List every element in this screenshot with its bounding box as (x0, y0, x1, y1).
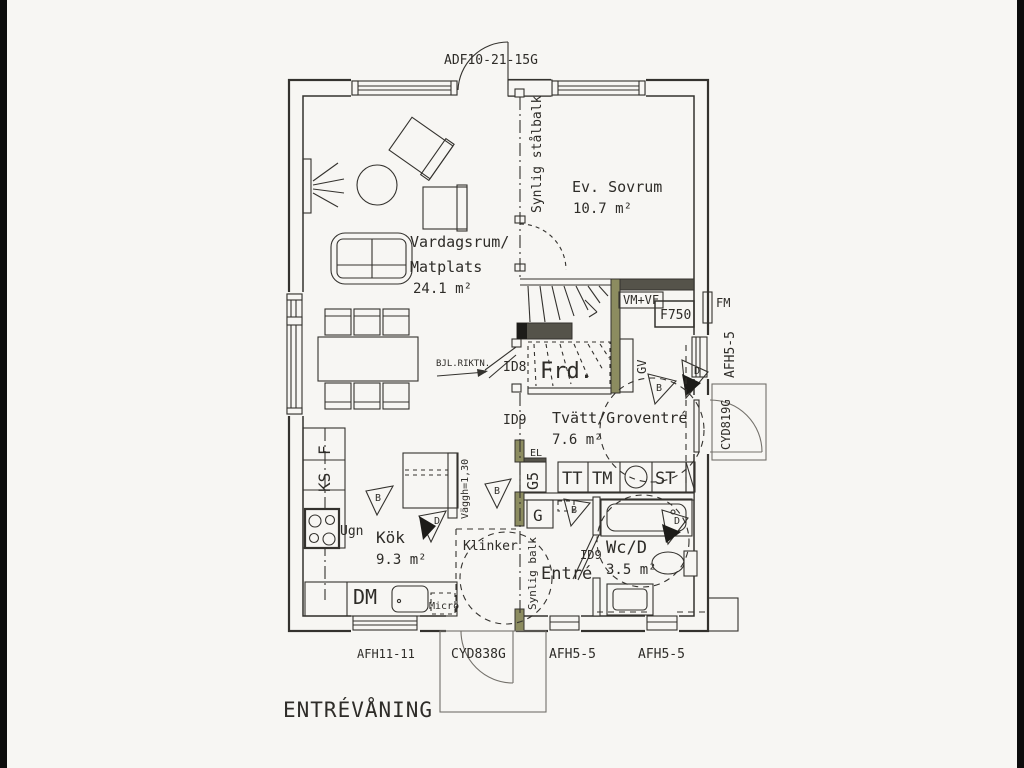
wc-west-wall-lower (593, 578, 600, 616)
id8-label: ID8 (503, 360, 526, 375)
id9-label: ID9 (503, 413, 526, 428)
tech-room: VM+VF F750 GV FM (619, 292, 730, 392)
page-title: ENTRÉVÅNING (283, 696, 433, 722)
wc-name: Wc/D (606, 538, 647, 558)
half-wall-label: Väggh=1,30 (460, 459, 471, 519)
steel-beam-label: Synlig stålbalk (530, 95, 545, 213)
laundry-sink (625, 466, 647, 488)
bedroom-future-door (515, 216, 566, 271)
pillar-top (508, 80, 552, 97)
fm-label: FM (716, 296, 730, 310)
floor-plan-drawing: Synlig stålbalk Synlig balk BJL.RIKTN. (0, 0, 1024, 768)
svg-text:B: B (656, 383, 662, 394)
front-porch (440, 631, 546, 712)
entry-door-code: CYD838G (451, 647, 506, 662)
stove-icon (305, 509, 339, 548)
marker-d-kitchen: D (419, 511, 446, 542)
washbasin (607, 584, 653, 615)
right-door-code: CYD819G (719, 399, 733, 450)
kitchen-name: Kök (376, 528, 405, 547)
wc-area: 3.5 m² (606, 562, 657, 578)
vm-vf-label: VM+VF (623, 293, 659, 307)
rear-platform (708, 598, 738, 631)
svg-text:D: D (674, 516, 680, 527)
kitchen-window-code: AFH11-11 (357, 647, 415, 661)
svg-text:B: B (494, 486, 500, 497)
entry-window-code: AFH5-5 (549, 647, 596, 662)
dishwasher-label: DM (353, 585, 377, 609)
laundry-name: Tvätt/Groventré (552, 409, 687, 427)
patio-door-code: ADF10-21-15G (444, 53, 538, 68)
gv-label: GV (635, 360, 649, 374)
toilet (652, 551, 697, 576)
svg-text:D: D (694, 366, 700, 377)
beam-direction-label: BJL.RIKTN. (436, 359, 490, 369)
storage-bottom-wall (528, 388, 611, 394)
armchair-1 (388, 116, 454, 181)
dining-table (318, 337, 418, 381)
dining-chairs (325, 309, 409, 409)
bedroom-name: Ev. Sovrum (572, 178, 662, 196)
marker-d-wc: D (662, 510, 688, 544)
tv-icon (303, 159, 344, 213)
dining-set (318, 309, 418, 409)
wardrobe-g5-label: G5 (524, 472, 542, 490)
water-heater-label: F750 (660, 308, 691, 323)
stairs: Frd. ID8 ID9 (503, 286, 610, 428)
svg-text:B: B (571, 505, 577, 516)
stair-handrail-cap (517, 323, 527, 339)
island (403, 453, 458, 518)
cleaning-label: ST (655, 469, 675, 489)
kitchen-area: 9.3 m² (376, 552, 427, 568)
oven-label: Ugn (340, 524, 363, 539)
living-name-1: Vardagsrum/ (410, 233, 509, 251)
living-name-2: Matplats (410, 258, 482, 276)
wardrobe-g-label: G (533, 506, 543, 525)
laundry-area: 7.6 m² (552, 432, 603, 448)
fridge-freezer-label: KS (315, 473, 334, 492)
bedroom-area: 10.7 m² (573, 201, 632, 217)
marker-b-island: B (485, 479, 511, 508)
id9-wc-label: ID9 (580, 548, 602, 562)
floor-tiles-label: Klinker (463, 539, 518, 554)
armchair-2 (423, 185, 467, 231)
laundry-room: Tvätt/Groventré 7.6 m² TT TM ST EL (524, 378, 704, 492)
living-area: 24.1 m² (413, 281, 472, 297)
dryer-label: TT (562, 469, 582, 489)
coffee-table (357, 165, 397, 205)
beam-label: Synlig balk (526, 537, 539, 610)
entry-name: Entré (541, 564, 592, 584)
svg-text:D: D (434, 516, 440, 527)
washer-label: TM (592, 469, 612, 489)
sofa (331, 233, 412, 284)
right-window-code: AFH5-5 (723, 331, 738, 378)
gv-unit (620, 339, 633, 392)
micro-label: Micro (429, 601, 459, 612)
floor-plan-photo: Synlig stålbalk Synlig balk BJL.RIKTN. (0, 0, 1024, 768)
kitchen: F KS Ugn DM Micro (303, 428, 471, 616)
wc-window-code: AFH5-5 (638, 647, 685, 662)
beam-direction-arrow (437, 369, 488, 377)
storage-label: Frd. (540, 359, 593, 384)
bedroom-tech-wall (620, 279, 694, 290)
svg-text:B: B (375, 493, 381, 504)
marker-b-entry: B (564, 499, 590, 526)
kitchen-sink (392, 586, 428, 612)
fridge-label: F (315, 445, 334, 455)
marker-b-kitchen: B (366, 486, 393, 515)
el-label: EL (530, 448, 542, 459)
